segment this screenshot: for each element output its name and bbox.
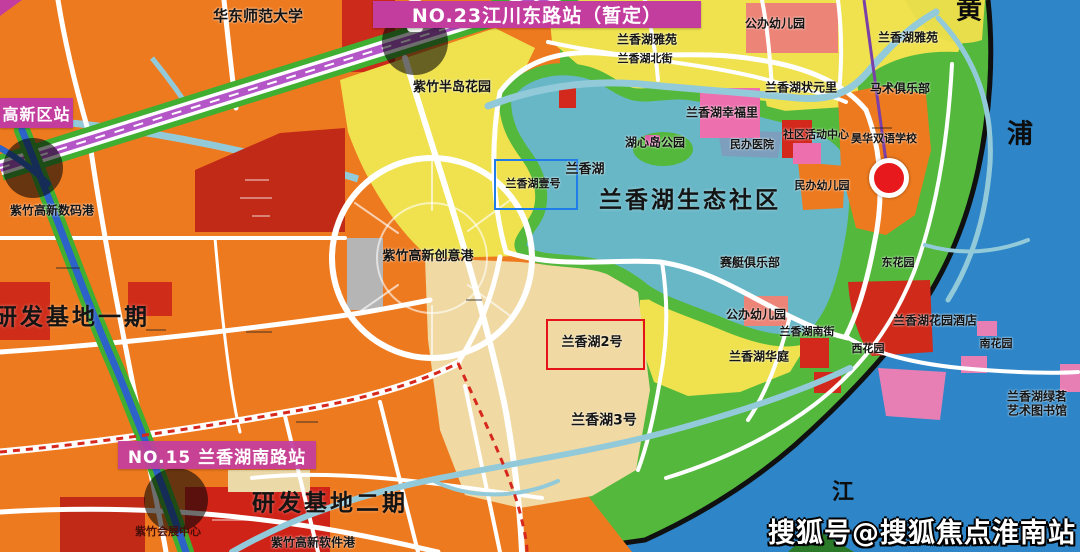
label-bilingual-school: 昊华双语学校 bbox=[851, 133, 917, 145]
label-island-park: 湖心岛公园 bbox=[625, 136, 685, 149]
station-banner-gaoxinqu-label: 高新区站 bbox=[2, 101, 70, 125]
label-public-kindergarten-south: 公办幼儿园 bbox=[726, 308, 786, 321]
label-south-garden: 南花园 bbox=[980, 338, 1013, 350]
label-creative-port: 紫竹高新创意港 bbox=[382, 250, 473, 264]
label-yayuan-west: 兰香湖雅苑 bbox=[617, 33, 677, 46]
label-public-kindergarten-north: 公办幼儿园 bbox=[745, 17, 805, 30]
label-lot2: 兰香湖2号 bbox=[561, 336, 622, 350]
label-community-center: 社区活动中心 bbox=[783, 129, 849, 141]
station-banner-no15: NO.15 兰香湖南路站 bbox=[118, 441, 316, 469]
label-river-huang: 黄 bbox=[956, 0, 982, 27]
label-equestrian-club: 马术俱乐部 bbox=[870, 82, 930, 95]
label-river-pu: 浦 bbox=[1007, 114, 1033, 151]
label-zhuangyuanli: 兰香湖状元里 bbox=[765, 81, 837, 94]
label-east-garden: 东花园 bbox=[882, 257, 915, 269]
label-river-jiang: 江 bbox=[832, 474, 854, 506]
label-peninsula-garden: 紫竹半岛花园 bbox=[413, 81, 491, 95]
label-university: 华东师范大学 bbox=[213, 8, 303, 25]
label-rd-base-2: 研发基地二期 bbox=[252, 491, 408, 516]
label-software-port: 紫竹高新软件港 bbox=[271, 536, 355, 549]
location-marker-icon bbox=[869, 158, 909, 198]
label-lake-name: 兰香湖 bbox=[565, 163, 604, 177]
station-banner-no23-label: NO.23江川东路站（暂定） bbox=[412, 1, 662, 28]
station-circle-gaoxinqu bbox=[3, 138, 63, 198]
label-west-garden: 西花园 bbox=[852, 343, 885, 355]
label-north-street: 兰香湖北街 bbox=[618, 53, 673, 65]
label-huating: 兰香湖华庭 bbox=[729, 350, 789, 363]
label-xingfuli: 兰香湖幸福里 bbox=[686, 106, 758, 119]
label-private-kindergarten: 民办幼儿园 bbox=[795, 180, 850, 192]
label-south-street: 兰香湖南街 bbox=[780, 326, 835, 338]
label-lot1: 兰香湖壹号 bbox=[506, 178, 561, 190]
label-exhibition-center: 紫竹会展中心 bbox=[135, 526, 201, 538]
label-private-hospital: 民办医院 bbox=[730, 139, 774, 151]
watermark: 搜狐号@搜狐焦点淮南站 bbox=[768, 511, 1076, 550]
label-garden-hotel: 兰香湖花园酒店 bbox=[893, 314, 977, 327]
station-circle-lanxianghu bbox=[144, 468, 208, 532]
label-yayuan-east: 兰香湖雅苑 bbox=[878, 31, 938, 44]
label-rd-base-1: 研发基地一期 bbox=[0, 305, 150, 330]
station-banner-gaoxinqu: 高新区站 bbox=[0, 98, 73, 128]
label-lot3: 兰香湖3号 bbox=[571, 413, 637, 428]
label-green-library-line2: 艺术图书馆 bbox=[1007, 404, 1067, 417]
label-rowing-club: 赛艇俱乐部 bbox=[720, 256, 780, 269]
label-eco-community: 兰香湖生态社区 bbox=[599, 188, 781, 213]
station-banner-no15-label: NO.15 兰香湖南路站 bbox=[128, 443, 306, 468]
label-green-library-line1: 兰香湖绿茗 bbox=[1007, 390, 1067, 403]
map-screenshot: 高新区站 NO.23江川东路站（暂定） NO.15 兰香湖南路站 华东师范大学 … bbox=[0, 0, 1080, 552]
station-banner-no23: NO.23江川东路站（暂定） bbox=[373, 1, 701, 28]
label-digital-port: 紫竹高新数码港 bbox=[10, 204, 94, 217]
